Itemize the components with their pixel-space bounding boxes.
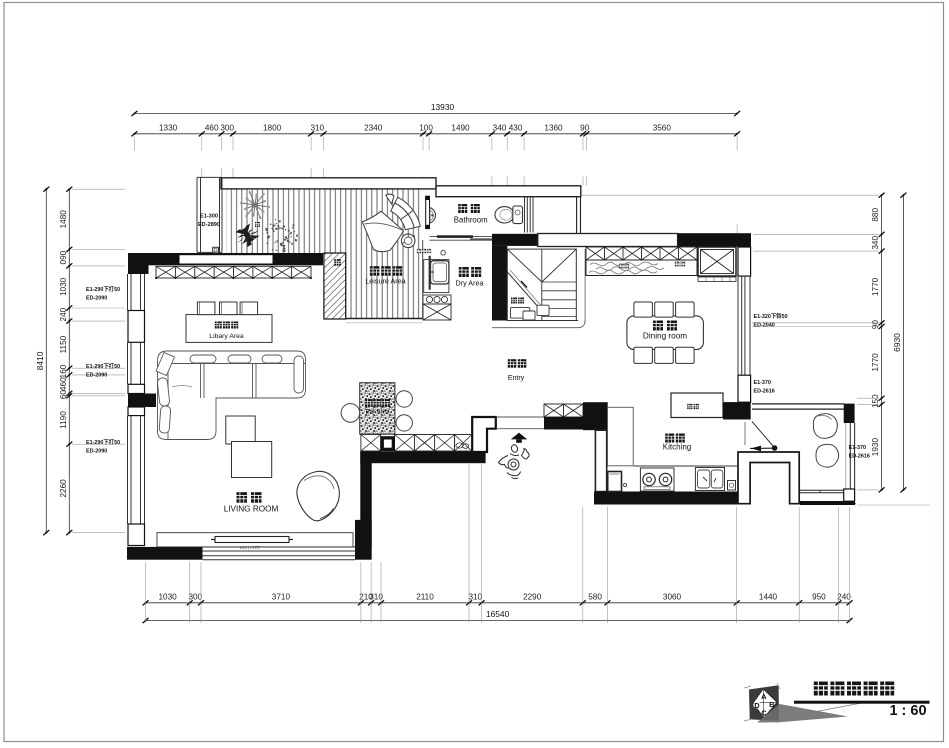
svg-text:A: A: [761, 692, 767, 701]
svg-text:ED-2090: ED-2090: [86, 296, 107, 302]
svg-text:B: B: [769, 700, 774, 709]
svg-text:340: 340: [871, 236, 880, 250]
svg-text:Dry Area: Dry Area: [456, 279, 484, 288]
svg-text:1770: 1770: [871, 353, 880, 372]
svg-text:2110: 2110: [416, 592, 434, 601]
svg-text:E1-290下打50: E1-290下打50: [86, 438, 120, 446]
svg-text:Libary Area: Libary Area: [209, 333, 244, 340]
svg-text:2340: 2340: [364, 123, 383, 132]
svg-text:1360: 1360: [544, 123, 563, 132]
svg-text:1800: 1800: [263, 123, 282, 132]
svg-text:2290: 2290: [523, 592, 542, 601]
svg-text:430: 430: [509, 123, 523, 132]
svg-text:1770: 1770: [871, 277, 880, 296]
svg-text:950: 950: [812, 592, 826, 601]
svg-text:090: 090: [59, 250, 68, 264]
svg-text:1490: 1490: [451, 123, 470, 132]
svg-text:Bathroom: Bathroom: [454, 216, 488, 225]
svg-text:13930: 13930: [431, 102, 455, 112]
svg-text:16540: 16540: [486, 609, 510, 619]
svg-text:1030: 1030: [59, 277, 68, 296]
svg-text:300: 300: [188, 592, 202, 601]
svg-text:3060: 3060: [663, 592, 682, 601]
svg-text:580: 580: [588, 592, 602, 601]
svg-text:Dining room: Dining room: [643, 332, 687, 341]
svg-text:Leisure Area: Leisure Area: [365, 277, 405, 286]
svg-text:1030: 1030: [158, 592, 177, 601]
svg-text:ED-2890: ED-2890: [198, 222, 220, 228]
svg-text:ED-2040: ED-2040: [754, 323, 775, 329]
svg-text:340: 340: [493, 123, 507, 132]
svg-text:LIVING ROOM: LIVING ROOM: [224, 505, 279, 514]
svg-text:3710: 3710: [272, 592, 291, 601]
svg-text:E1-370: E1-370: [849, 445, 866, 451]
svg-text:E1-290下打50: E1-290下打50: [86, 285, 120, 293]
svg-text:8410: 8410: [35, 351, 45, 370]
svg-text:310: 310: [310, 123, 324, 132]
svg-text:1930: 1930: [871, 438, 880, 457]
svg-text:60: 60: [59, 390, 68, 400]
svg-text:160: 160: [59, 364, 68, 378]
svg-text:240: 240: [837, 592, 851, 601]
svg-text:1150: 1150: [59, 335, 68, 353]
svg-text:460: 460: [205, 123, 219, 132]
svg-text:90: 90: [580, 123, 590, 132]
svg-text:880: 880: [871, 208, 880, 222]
svg-text:300: 300: [220, 123, 234, 132]
svg-text:Entry: Entry: [508, 375, 525, 382]
svg-text:1480: 1480: [59, 210, 68, 229]
svg-text:E1-370: E1-370: [754, 380, 771, 386]
svg-text:D: D: [754, 701, 760, 710]
svg-text:ED-2090: ED-2090: [86, 449, 107, 455]
svg-text:1330: 1330: [159, 123, 178, 132]
svg-text:L84 | L7E7: L84 | L7E7: [240, 545, 261, 550]
svg-text:E1-290下打50: E1-290下打50: [86, 362, 120, 370]
svg-text:E1-300: E1-300: [200, 214, 218, 220]
svg-text:ED-2616: ED-2616: [849, 454, 870, 460]
svg-text:3560: 3560: [653, 123, 672, 132]
svg-text:460: 460: [59, 377, 68, 391]
svg-text:6930: 6930: [892, 333, 902, 352]
svg-text:Bar Area: Bar Area: [365, 409, 390, 416]
svg-text:1190: 1190: [59, 411, 68, 429]
svg-text:90: 90: [871, 320, 880, 330]
svg-text:1440: 1440: [759, 592, 778, 601]
svg-text:100: 100: [419, 123, 433, 132]
svg-text:1 : 60: 1 : 60: [889, 703, 926, 719]
svg-text:ED-2090: ED-2090: [86, 373, 107, 379]
svg-text:310: 310: [468, 592, 482, 601]
svg-text:Kitching: Kitching: [663, 443, 691, 452]
svg-text:ED-2616: ED-2616: [754, 389, 775, 395]
svg-text:2260: 2260: [59, 479, 68, 498]
svg-text:240: 240: [59, 307, 68, 321]
svg-text:150: 150: [871, 394, 880, 408]
svg-text:E1-320下铃50: E1-320下铃50: [754, 312, 788, 320]
